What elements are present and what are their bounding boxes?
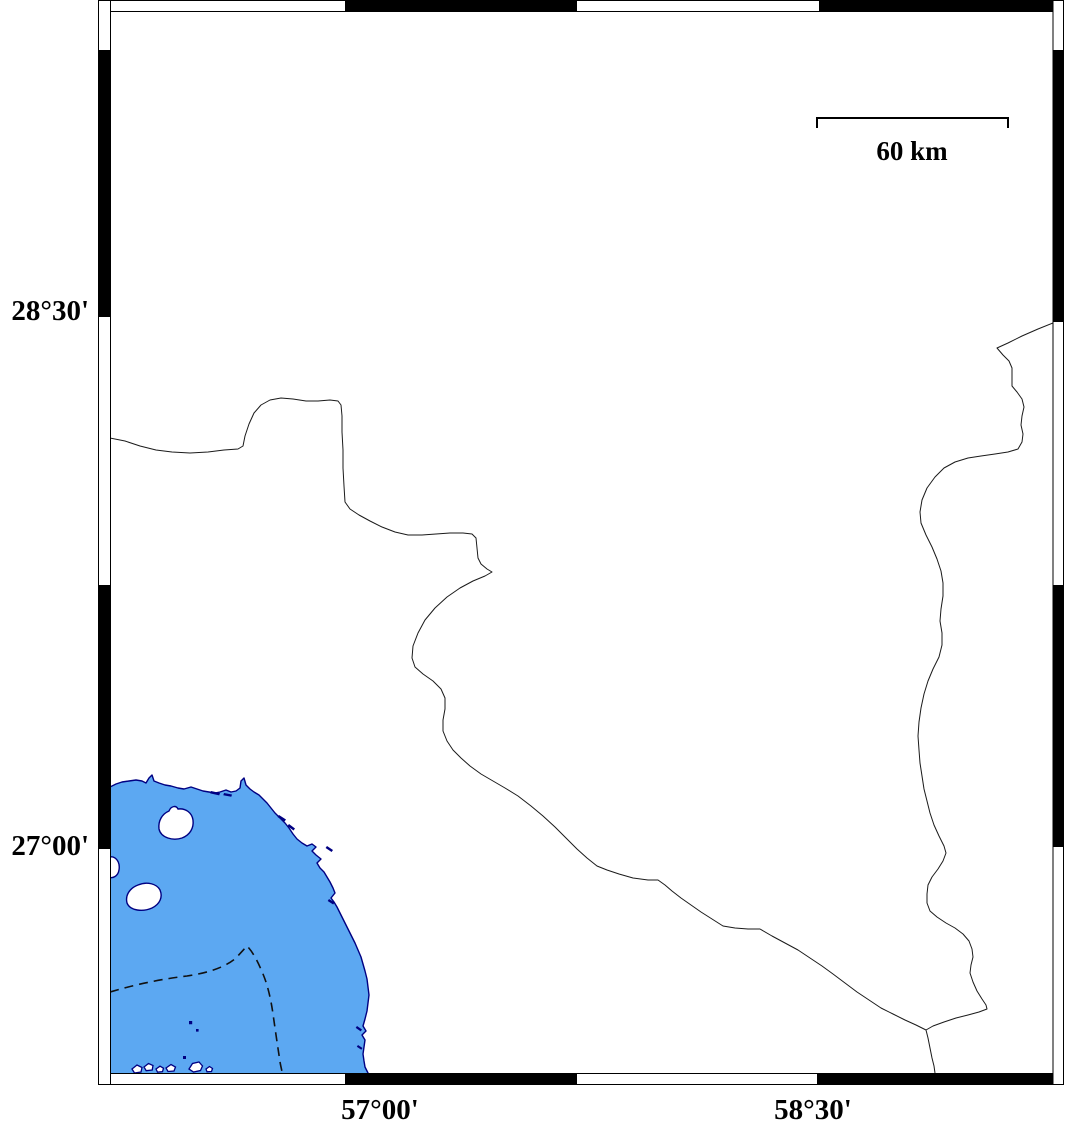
map-figure: 28°30' 27°00' 57°00' 58°30' 60 km: [0, 0, 1066, 1123]
lon-label-right: 58°30': [733, 1096, 893, 1123]
sea-polygon: [110, 775, 369, 1077]
lon-label-left: 57°00': [300, 1096, 460, 1123]
lat-label-top: 28°30': [0, 297, 89, 326]
scale-bar-line: [817, 118, 1008, 128]
border-line-east: [918, 323, 1053, 1073]
map-canvas: [0, 0, 1066, 1123]
scale-bar-label: 60 km: [832, 138, 992, 165]
lat-label-bottom: 27°00': [0, 832, 89, 861]
